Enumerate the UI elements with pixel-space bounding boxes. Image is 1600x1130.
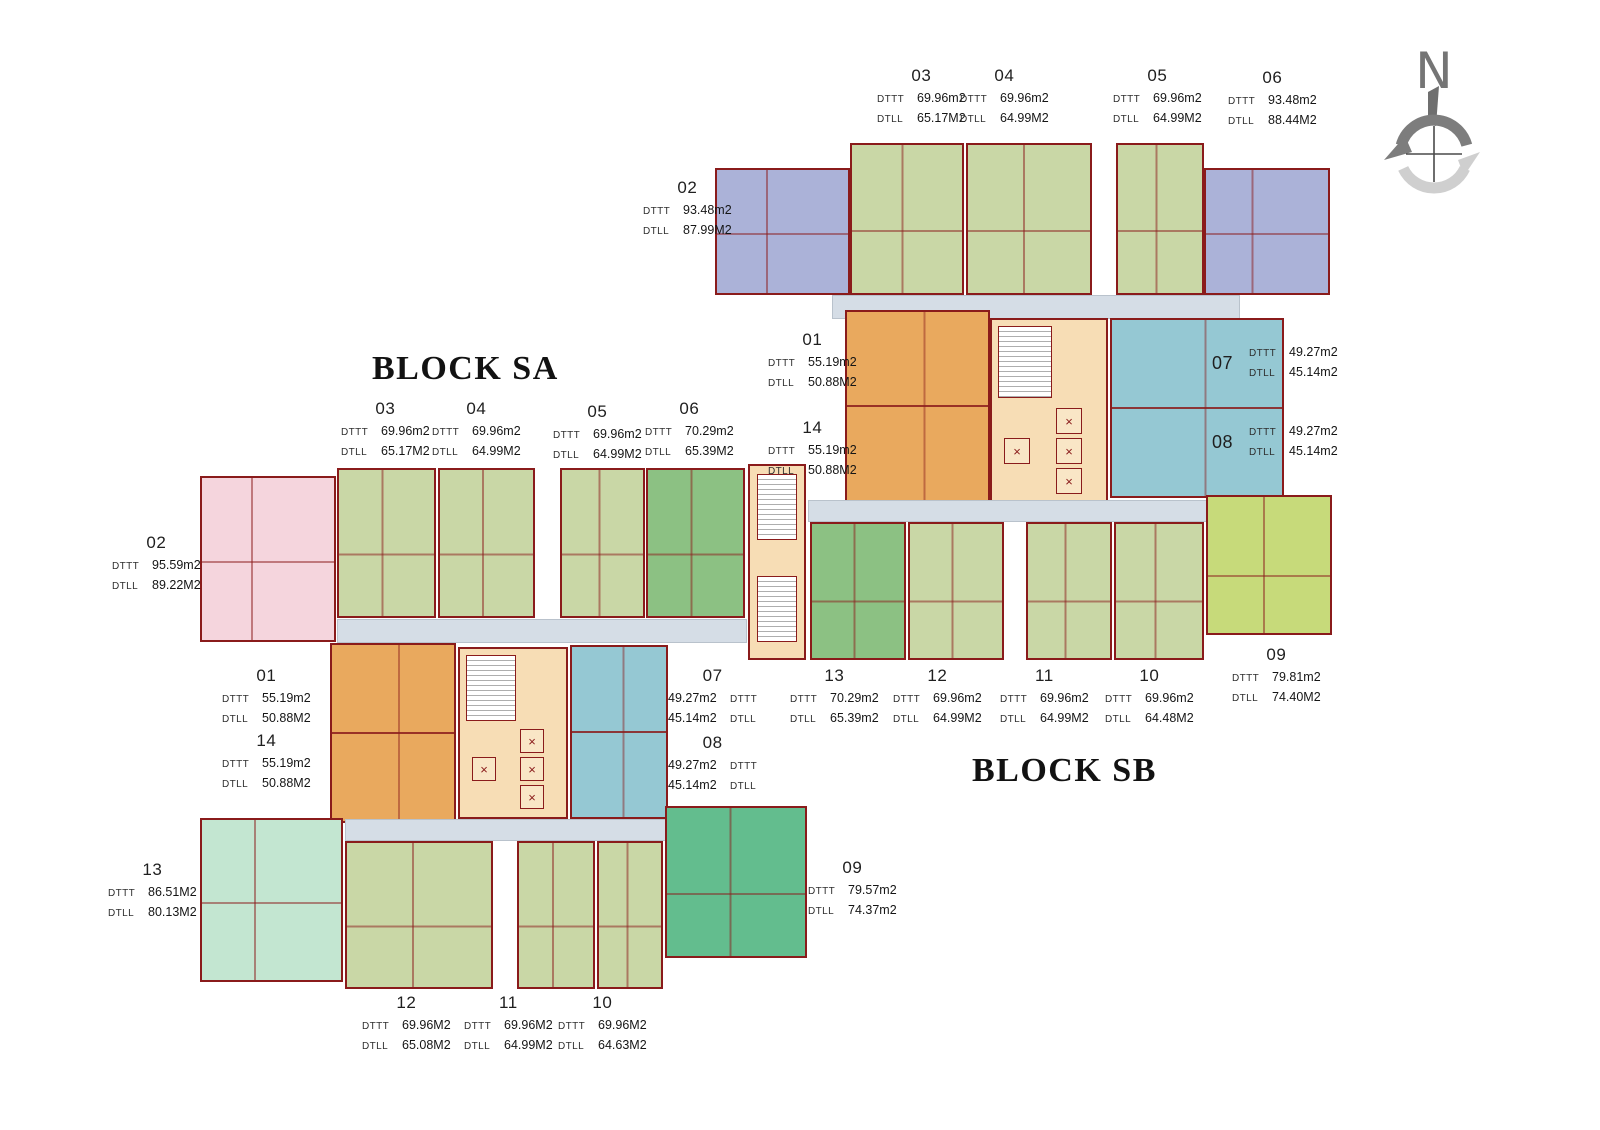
unit-areas: DTTT93.48m2DTLL88.44M2 — [1228, 93, 1317, 127]
area-value: 89.22M2 — [152, 578, 201, 592]
unit-number: 05 — [1113, 66, 1202, 86]
area-value: 64.99M2 — [1000, 111, 1049, 125]
sb-unit-04-plan — [966, 143, 1092, 295]
unit-label-sb-10: 10DTTT69.96m2DTLL64.48M2 — [1105, 666, 1194, 731]
area-tag: DTTT — [1232, 673, 1264, 684]
area-tag: DTTT — [222, 759, 254, 770]
area-tag: DTLL — [730, 714, 756, 725]
area-value: 45.14m2 — [668, 711, 722, 725]
area-tag: DTLL — [730, 781, 756, 792]
area-row: DTLL65.08M2 — [362, 1038, 451, 1052]
unit-label-sb-07: 07DTTT49.27m2DTLL45.14m2 — [1212, 345, 1338, 385]
area-value: 55.19m2 — [262, 691, 311, 705]
unit-areas: DTTT49.27m2DTLL45.14m2 — [1249, 424, 1338, 464]
block-sa-title: BLOCK SA — [372, 350, 559, 388]
unit-areas: 49.27m2DTTT45.14m2DTLL — [668, 691, 757, 725]
unit-number: 09 — [1232, 645, 1321, 665]
area-value: 65.17M2 — [917, 111, 966, 125]
unit-areas: DTTT69.96m2DTLL64.99M2 — [893, 691, 982, 725]
unit-areas: DTTT55.19m2DTLL50.88M2 — [222, 756, 311, 790]
area-row: DTTT69.96m2 — [341, 424, 430, 438]
unit-number: 14 — [768, 418, 857, 438]
area-tag: DTTT — [768, 446, 800, 457]
area-value: 79.81m2 — [1272, 670, 1321, 684]
unit-areas: DTTT69.96M2DTLL65.08M2 — [362, 1018, 451, 1052]
area-row: DTTT69.96m2 — [1105, 691, 1194, 705]
area-row: DTTT55.19m2 — [222, 756, 311, 770]
area-value: 69.96m2 — [1153, 91, 1202, 105]
area-row: DTTT93.48m2 — [1228, 93, 1317, 107]
area-row: 45.14m2DTLL — [668, 778, 757, 792]
sa-unit-09-plan — [665, 806, 807, 958]
area-value: 45.14m2 — [1289, 444, 1338, 458]
sb-unit-10-plan — [1114, 522, 1204, 660]
area-row: DTTT95.59m2 — [112, 558, 201, 572]
area-tag: DTLL — [222, 714, 254, 725]
unit-label-sb-03: 03DTTT69.96m2DTLL65.17M2 — [877, 66, 966, 131]
sb-elevator-4 — [1004, 438, 1030, 464]
sb-unit-01-14-plan — [845, 310, 990, 502]
area-row: DTLL65.17M2 — [341, 444, 430, 458]
unit-number: 10 — [558, 993, 647, 1013]
area-tag: DTLL — [1105, 714, 1137, 725]
area-row: DTLL50.88M2 — [768, 463, 857, 477]
unit-areas: DTTT69.96m2DTLL64.99M2 — [432, 424, 521, 458]
area-tag: DTLL — [1113, 114, 1145, 125]
connector-core — [748, 464, 806, 660]
compass: N — [1372, 42, 1496, 212]
area-value: 87.99M2 — [683, 223, 732, 237]
area-row: DTLL50.88M2 — [222, 711, 311, 725]
unit-number: 11 — [464, 993, 553, 1013]
area-tag: DTLL — [1228, 116, 1260, 127]
unit-label-sa-06: 06DTTT70.29m2DTLL65.39M2 — [645, 399, 734, 464]
area-tag: DTLL — [790, 714, 822, 725]
area-row: DTTT69.96m2 — [432, 424, 521, 438]
unit-label-sa-01: 01DTTT55.19m2DTLL50.88M2 — [222, 666, 311, 731]
area-row: 49.27m2DTTT — [668, 691, 757, 705]
unit-areas: DTTT49.27m2DTLL45.14m2 — [1249, 345, 1338, 385]
unit-label-sa-13: 13DTTT86.51M2DTLL80.13M2 — [108, 860, 197, 925]
unit-label-sa-02: 02DTTT95.59m2DTLL89.22M2 — [112, 533, 201, 598]
unit-number: 01 — [222, 666, 311, 686]
unit-areas: DTTT69.96m2DTLL65.17M2 — [341, 424, 430, 458]
area-tag: DTTT — [790, 694, 822, 705]
sa-corridor-upper — [337, 619, 747, 643]
unit-areas: DTTT55.19m2DTLL50.88M2 — [768, 443, 857, 477]
unit-areas: DTTT69.96m2DTLL64.99M2 — [1113, 91, 1202, 125]
unit-areas: DTTT79.57m2DTLL74.37m2 — [808, 883, 897, 917]
area-row: DTLL64.99M2 — [464, 1038, 553, 1052]
compass-rose-icon: N — [1372, 42, 1496, 212]
sb-unit-13-plan — [810, 522, 906, 660]
area-value: 49.27m2 — [1289, 345, 1338, 359]
area-row: DTTT69.96m2 — [1113, 91, 1202, 105]
area-row: DTTT55.19m2 — [222, 691, 311, 705]
unit-number: 12 — [362, 993, 451, 1013]
area-value: 65.17M2 — [381, 444, 430, 458]
area-value: 65.39m2 — [830, 711, 879, 725]
area-row: DTLL88.44M2 — [1228, 113, 1317, 127]
unit-label-sb-12: 12DTTT69.96m2DTLL64.99M2 — [893, 666, 982, 731]
area-value: 55.19m2 — [808, 355, 857, 369]
block-sb-title: BLOCK SB — [972, 752, 1157, 790]
area-row: DTLL74.40M2 — [1232, 690, 1321, 704]
sb-unit-12-plan — [908, 522, 1004, 660]
area-row: DTTT70.29m2 — [645, 424, 734, 438]
unit-areas: DTTT69.96m2DTLL64.99M2 — [960, 91, 1049, 125]
area-value: 69.96m2 — [1040, 691, 1089, 705]
unit-number: 09 — [808, 858, 897, 878]
area-tag: DTTT — [643, 206, 675, 217]
connector-stair-2 — [757, 576, 797, 642]
area-row: DTTT93.48m2 — [643, 203, 732, 217]
area-value: 50.88M2 — [262, 711, 311, 725]
unit-label-sb-09: 09DTTT79.81m2DTLL74.40M2 — [1232, 645, 1321, 710]
area-tag: DTTT — [464, 1021, 496, 1032]
area-tag: DTTT — [558, 1021, 590, 1032]
sa-unit-03-plan — [337, 468, 436, 618]
area-value: 49.27m2 — [668, 758, 722, 772]
area-value: 49.27m2 — [668, 691, 722, 705]
area-row: DTTT55.19m2 — [768, 355, 857, 369]
sb-elevator-1 — [1056, 408, 1082, 434]
area-value: 86.51M2 — [148, 885, 197, 899]
area-tag: DTLL — [1232, 693, 1264, 704]
area-value: 64.99M2 — [504, 1038, 553, 1052]
area-value: 74.40M2 — [1272, 690, 1321, 704]
area-tag: DTLL — [432, 447, 464, 458]
area-value: 93.48m2 — [683, 203, 732, 217]
unit-number: 04 — [432, 399, 521, 419]
area-tag: DTTT — [1249, 427, 1281, 438]
unit-label-sb-05: 05DTTT69.96m2DTLL64.99M2 — [1113, 66, 1202, 131]
area-tag: DTLL — [1000, 714, 1032, 725]
area-value: 64.48M2 — [1145, 711, 1194, 725]
unit-number: 12 — [893, 666, 982, 686]
unit-label-sa-12: 12DTTT69.96M2DTLL65.08M2 — [362, 993, 451, 1058]
area-row: DTTT69.96m2 — [877, 91, 966, 105]
area-tag: DTLL — [808, 906, 840, 917]
area-tag: DTTT — [730, 761, 757, 772]
unit-number: 07 — [668, 666, 757, 686]
area-value: 50.88M2 — [808, 463, 857, 477]
unit-areas: DTTT93.48m2DTLL87.99M2 — [643, 203, 732, 237]
unit-number: 14 — [222, 731, 311, 751]
area-value: 70.29m2 — [830, 691, 879, 705]
sb-unit-03-plan — [850, 143, 964, 295]
area-row: DTTT49.27m2 — [1249, 345, 1338, 359]
sb-corridor-lower — [808, 500, 1208, 522]
unit-areas: DTTT95.59m2DTLL89.22M2 — [112, 558, 201, 592]
unit-areas: DTTT69.96m2DTLL64.48M2 — [1105, 691, 1194, 725]
area-row: DTTT69.96m2 — [960, 91, 1049, 105]
area-value: 80.13M2 — [148, 905, 197, 919]
area-row: DTLL50.88M2 — [768, 375, 857, 389]
sa-elevator-1 — [520, 729, 544, 753]
area-row: DTLL64.99M2 — [553, 447, 642, 461]
area-value: 74.37m2 — [848, 903, 897, 917]
area-row: DTTT69.96M2 — [464, 1018, 553, 1032]
area-row: DTLL64.99M2 — [1113, 111, 1202, 125]
unit-label-sa-03: 03DTTT69.96m2DTLL65.17M2 — [341, 399, 430, 464]
unit-number: 13 — [108, 860, 197, 880]
area-value: 69.96m2 — [917, 91, 966, 105]
area-row: DTLL64.99M2 — [893, 711, 982, 725]
unit-areas: DTTT55.19m2DTLL50.88M2 — [222, 691, 311, 725]
area-value: 69.96M2 — [504, 1018, 553, 1032]
area-row: DTLL65.39m2 — [790, 711, 879, 725]
area-value: 93.48m2 — [1268, 93, 1317, 107]
area-tag: DTTT — [808, 886, 840, 897]
area-value: 69.96m2 — [933, 691, 982, 705]
unit-areas: DTTT69.96m2DTLL65.17M2 — [877, 91, 966, 125]
area-tag: DTTT — [1228, 96, 1260, 107]
area-row: DTTT69.96M2 — [558, 1018, 647, 1032]
area-value: 65.39M2 — [685, 444, 734, 458]
sb-unit-05-plan — [1116, 143, 1204, 295]
area-tag: DTTT — [768, 358, 800, 369]
area-tag: DTTT — [730, 694, 757, 705]
area-tag: DTLL — [768, 466, 800, 477]
area-row: DTLL45.14m2 — [1249, 444, 1338, 458]
area-row: DTLL87.99M2 — [643, 223, 732, 237]
area-tag: DTLL — [558, 1041, 590, 1052]
unit-number: 06 — [645, 399, 734, 419]
area-value: 69.96M2 — [402, 1018, 451, 1032]
area-tag: DTTT — [1249, 348, 1281, 359]
unit-label-sb-11: 11DTTT69.96m2DTLL64.99M2 — [1000, 666, 1089, 731]
area-row: DTLL64.63M2 — [558, 1038, 647, 1052]
sa-unit-06-plan — [646, 468, 745, 618]
sa-unit-05-plan — [560, 468, 645, 618]
sb-elevator-3 — [1056, 468, 1082, 494]
sa-elevator-3 — [520, 785, 544, 809]
area-row: DTLL80.13M2 — [108, 905, 197, 919]
floor-plan: BLOCK SA BLOCK SB N 03DTTT69.96m2DTLL65.… — [0, 0, 1600, 1130]
area-tag: DTLL — [893, 714, 925, 725]
area-value: 64.99M2 — [933, 711, 982, 725]
unit-label-sa-10: 10DTTT69.96M2DTLL64.63M2 — [558, 993, 647, 1058]
unit-label-sb-04: 04DTTT69.96m2DTLL64.99M2 — [960, 66, 1049, 131]
unit-number: 03 — [877, 66, 966, 86]
unit-areas: DTTT86.51M2DTLL80.13M2 — [108, 885, 197, 919]
area-row: DTLL65.17M2 — [877, 111, 966, 125]
area-tag: DTTT — [112, 561, 144, 572]
unit-label-sb-14: 14DTTT55.19m2DTLL50.88M2 — [768, 418, 857, 483]
area-row: DTLL64.99M2 — [1000, 711, 1089, 725]
area-value: 64.63M2 — [598, 1038, 647, 1052]
unit-label-sa-09: 09DTTT79.57m2DTLL74.37m2 — [808, 858, 897, 923]
area-row: DTTT70.29m2 — [790, 691, 879, 705]
sa-unit-12-plan — [345, 841, 493, 989]
area-row: DTTT69.96m2 — [553, 427, 642, 441]
area-tag: DTLL — [645, 447, 677, 458]
unit-label-sa-11: 11DTTT69.96M2DTLL64.99M2 — [464, 993, 553, 1058]
unit-label-sb-06: 06DTTT93.48m2DTLL88.44M2 — [1228, 68, 1317, 133]
unit-number: 04 — [960, 66, 1049, 86]
area-value: 50.88M2 — [808, 375, 857, 389]
unit-areas: DTTT69.96m2DTLL64.99M2 — [553, 427, 642, 461]
unit-number: 05 — [553, 402, 642, 422]
unit-label-sa-08: 0849.27m2DTTT45.14m2DTLL — [668, 733, 757, 798]
area-row: DTLL64.99M2 — [960, 111, 1049, 125]
area-tag: DTLL — [1249, 447, 1281, 458]
area-row: DTTT86.51M2 — [108, 885, 197, 899]
sa-corridor-lower — [345, 819, 668, 841]
sb-core — [990, 318, 1108, 502]
area-value: 69.96m2 — [1145, 691, 1194, 705]
unit-areas: DTTT69.96M2DTLL64.99M2 — [464, 1018, 553, 1052]
unit-areas: DTTT69.96m2DTLL64.99M2 — [1000, 691, 1089, 725]
sa-unit-13-plan — [200, 818, 343, 982]
area-row: DTLL64.48M2 — [1105, 711, 1194, 725]
area-value: 70.29m2 — [685, 424, 734, 438]
sa-stair — [466, 655, 516, 721]
area-tag: DTTT — [893, 694, 925, 705]
sb-unit-02-plan — [715, 168, 850, 295]
sa-elevator-2 — [520, 757, 544, 781]
unit-number: 06 — [1228, 68, 1317, 88]
area-tag: DTLL — [464, 1041, 496, 1052]
area-tag: DTLL — [553, 450, 585, 461]
unit-number: 08 — [668, 733, 757, 753]
area-tag: DTTT — [362, 1021, 394, 1032]
area-tag: DTTT — [108, 888, 140, 899]
area-tag: DTTT — [645, 427, 677, 438]
unit-areas: DTTT55.19m2DTLL50.88M2 — [768, 355, 857, 389]
area-tag: DTLL — [112, 581, 144, 592]
area-tag: DTTT — [960, 94, 992, 105]
unit-number: 07 — [1212, 353, 1233, 374]
unit-label-sb-01: 01DTTT55.19m2DTLL50.88M2 — [768, 330, 857, 395]
sa-core — [458, 647, 568, 819]
area-tag: DTLL — [108, 908, 140, 919]
area-value: 45.14m2 — [1289, 365, 1338, 379]
area-value: 69.96M2 — [598, 1018, 647, 1032]
area-row: DTLL74.37m2 — [808, 903, 897, 917]
area-tag: DTLL — [341, 447, 373, 458]
area-value: 69.96m2 — [1000, 91, 1049, 105]
area-value: 50.88M2 — [262, 776, 311, 790]
area-value: 69.96m2 — [381, 424, 430, 438]
unit-areas: DTTT70.29m2DTLL65.39m2 — [790, 691, 879, 725]
sb-stair — [998, 326, 1052, 398]
area-tag: DTLL — [768, 378, 800, 389]
area-tag: DTTT — [432, 427, 464, 438]
sb-elevator-2 — [1056, 438, 1082, 464]
unit-label-sa-05: 05DTTT69.96m2DTLL64.99M2 — [553, 402, 642, 467]
area-value: 45.14m2 — [668, 778, 722, 792]
unit-label-sa-04: 04DTTT69.96m2DTLL64.99M2 — [432, 399, 521, 464]
unit-label-sb-13: 13DTTT70.29m2DTLL65.39m2 — [790, 666, 879, 731]
area-tag: DTLL — [222, 779, 254, 790]
connector-stair-1 — [757, 474, 797, 540]
area-row: DTTT49.27m2 — [1249, 424, 1338, 438]
unit-areas: DTTT70.29m2DTLL65.39M2 — [645, 424, 734, 458]
unit-label-sb-02: 02DTTT93.48m2DTLL87.99M2 — [643, 178, 732, 243]
unit-number: 02 — [643, 178, 732, 198]
area-tag: DTLL — [877, 114, 909, 125]
area-value: 64.99M2 — [593, 447, 642, 461]
area-row: DTTT79.81m2 — [1232, 670, 1321, 684]
unit-number: 08 — [1212, 432, 1233, 453]
sb-unit-09-plan — [1206, 495, 1332, 635]
area-tag: DTTT — [341, 427, 373, 438]
area-row: 49.27m2DTTT — [668, 758, 757, 772]
area-row: DTTT69.96m2 — [1000, 691, 1089, 705]
area-value: 79.57m2 — [848, 883, 897, 897]
area-tag: DTTT — [222, 694, 254, 705]
sa-unit-02-plan — [200, 476, 336, 642]
area-value: 69.96m2 — [472, 424, 521, 438]
sb-unit-06-plan — [1204, 168, 1330, 295]
area-value: 64.99M2 — [1153, 111, 1202, 125]
sa-unit-10-plan — [597, 841, 663, 989]
area-tag: DTLL — [643, 226, 675, 237]
area-row: DTTT69.96M2 — [362, 1018, 451, 1032]
sa-unit-01-14-plan — [330, 643, 456, 823]
area-row: DTLL64.99M2 — [432, 444, 521, 458]
area-tag: DTTT — [1105, 694, 1137, 705]
unit-number: 02 — [112, 533, 201, 553]
unit-number: 10 — [1105, 666, 1194, 686]
area-row: DTLL45.14m2 — [1249, 365, 1338, 379]
area-value: 55.19m2 — [808, 443, 857, 457]
area-row: DTLL50.88M2 — [222, 776, 311, 790]
area-tag: DTLL — [362, 1041, 394, 1052]
unit-number: 03 — [341, 399, 430, 419]
area-tag: DTLL — [1249, 368, 1281, 379]
area-row: 45.14m2DTLL — [668, 711, 757, 725]
area-value: 95.59m2 — [152, 558, 201, 572]
unit-label-sa-14: 14DTTT55.19m2DTLL50.88M2 — [222, 731, 311, 796]
unit-number: 11 — [1000, 666, 1089, 686]
sa-unit-04-plan — [438, 468, 535, 618]
sa-elevator-4 — [472, 757, 496, 781]
area-value: 88.44M2 — [1268, 113, 1317, 127]
area-value: 64.99M2 — [472, 444, 521, 458]
area-value: 69.96m2 — [593, 427, 642, 441]
area-tag: DTLL — [960, 114, 992, 125]
area-row: DTTT55.19m2 — [768, 443, 857, 457]
area-tag: DTTT — [553, 430, 585, 441]
area-value: 55.19m2 — [262, 756, 311, 770]
area-row: DTTT69.96m2 — [893, 691, 982, 705]
unit-areas: 49.27m2DTTT45.14m2DTLL — [668, 758, 757, 792]
area-row: DTTT79.57m2 — [808, 883, 897, 897]
area-value: 65.08M2 — [402, 1038, 451, 1052]
unit-label-sa-07: 0749.27m2DTTT45.14m2DTLL — [668, 666, 757, 731]
area-row: DTLL65.39M2 — [645, 444, 734, 458]
unit-areas: DTTT69.96M2DTLL64.63M2 — [558, 1018, 647, 1052]
area-tag: DTTT — [877, 94, 909, 105]
area-row: DTLL89.22M2 — [112, 578, 201, 592]
sb-unit-11-plan — [1026, 522, 1112, 660]
sa-unit-11-plan — [517, 841, 595, 989]
sa-unit-07-08-plan — [570, 645, 668, 819]
unit-label-sb-08: 08DTTT49.27m2DTLL45.14m2 — [1212, 424, 1338, 464]
area-tag: DTTT — [1113, 94, 1145, 105]
area-value: 49.27m2 — [1289, 424, 1338, 438]
unit-number: 01 — [768, 330, 857, 350]
area-tag: DTTT — [1000, 694, 1032, 705]
area-value: 64.99M2 — [1040, 711, 1089, 725]
unit-areas: DTTT79.81m2DTLL74.40M2 — [1232, 670, 1321, 704]
unit-number: 13 — [790, 666, 879, 686]
